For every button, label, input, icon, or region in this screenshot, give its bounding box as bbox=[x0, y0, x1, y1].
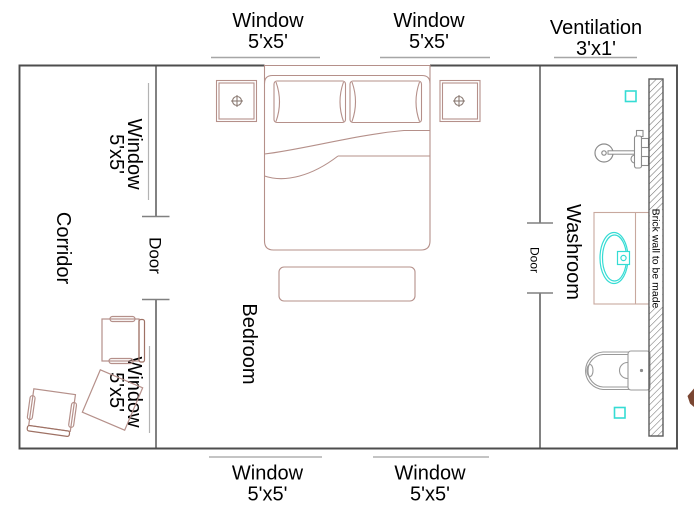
svg-text:Corridor: Corridor bbox=[52, 212, 74, 285]
svg-text:5'x5': 5'x5' bbox=[248, 484, 288, 506]
svg-text:Window: Window bbox=[232, 10, 304, 32]
svg-text:3'x1': 3'x1' bbox=[576, 38, 616, 60]
svg-text:Window: Window bbox=[232, 463, 304, 485]
svg-text:5'x5': 5'x5' bbox=[410, 484, 450, 506]
svg-text:Brick wall to be made: Brick wall to be made bbox=[650, 209, 662, 309]
svg-text:Washroom: Washroom bbox=[562, 204, 584, 300]
svg-text:Window: Window bbox=[394, 463, 466, 485]
svg-text:Window: Window bbox=[393, 10, 465, 32]
svg-text:5'x5': 5'x5' bbox=[105, 134, 127, 174]
svg-text:5'x5': 5'x5' bbox=[105, 372, 127, 412]
svg-text:5'x5': 5'x5' bbox=[248, 31, 288, 53]
svg-text:Ventilation: Ventilation bbox=[550, 17, 642, 39]
svg-text:Door: Door bbox=[146, 237, 165, 274]
svg-text:Bedroom: Bedroom bbox=[238, 303, 260, 384]
svg-text:Door: Door bbox=[528, 247, 542, 273]
svg-text:5'x5': 5'x5' bbox=[409, 31, 449, 53]
